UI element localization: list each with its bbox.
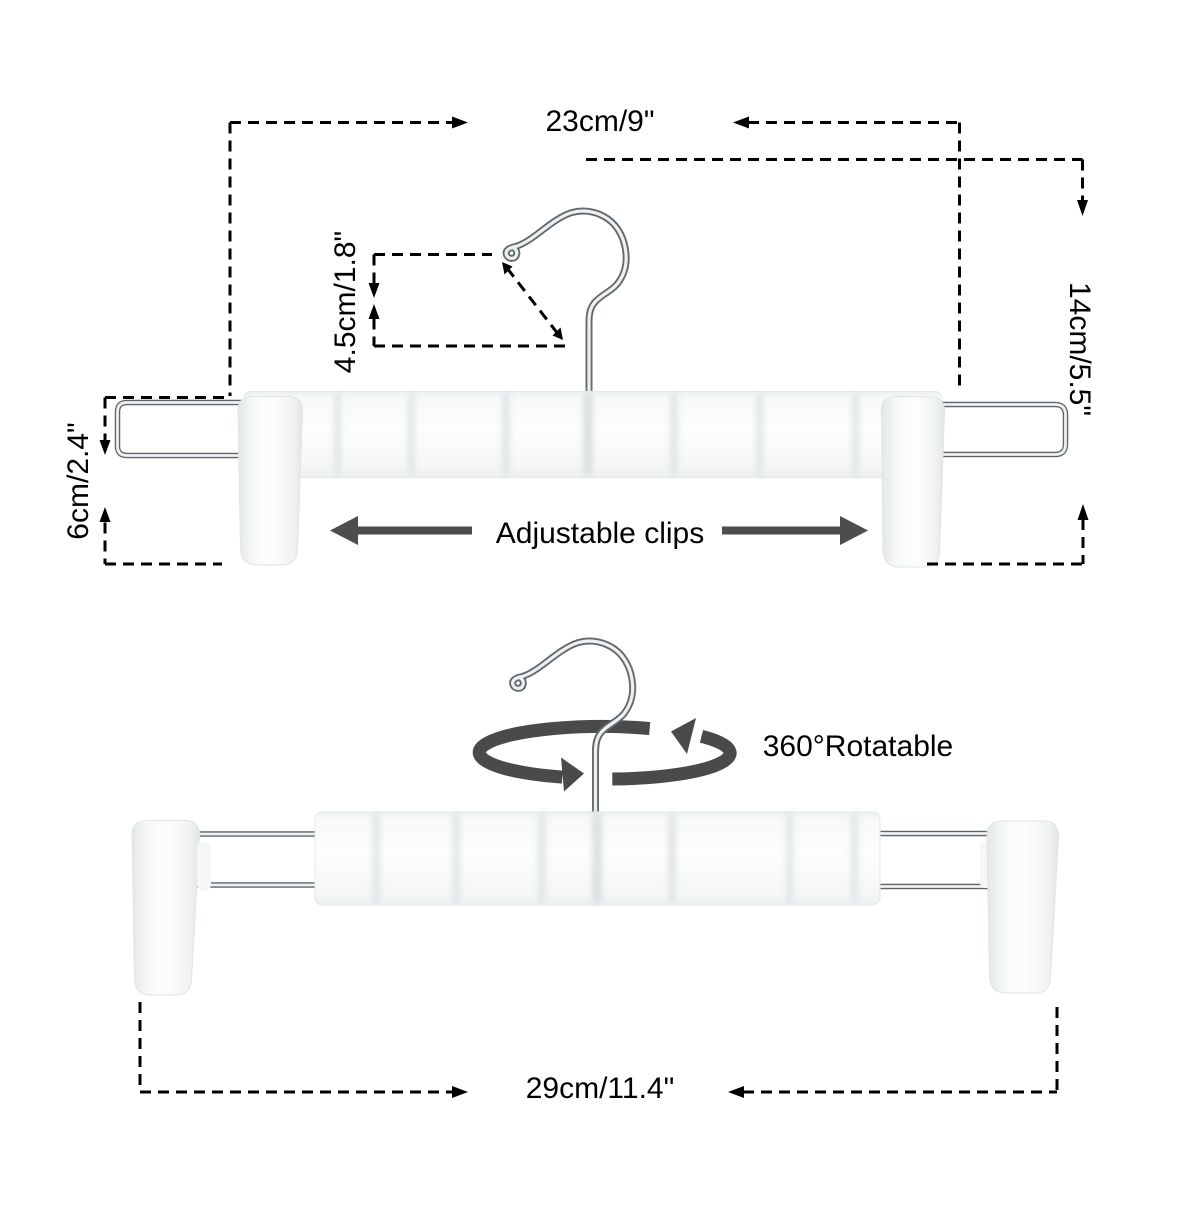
svg-text:29cm/11.4": 29cm/11.4" [526,1072,675,1105]
svg-text:23cm/9": 23cm/9" [545,105,654,138]
svg-text:Adjustable clips: Adjustable clips [496,517,704,550]
svg-text:360°Rotatable: 360°Rotatable [763,730,953,763]
svg-text:4.5cm/1.8": 4.5cm/1.8" [329,231,362,373]
svg-text:6cm/2.4": 6cm/2.4" [62,422,95,539]
svg-text:14cm/5.5": 14cm/5.5" [1063,282,1096,416]
